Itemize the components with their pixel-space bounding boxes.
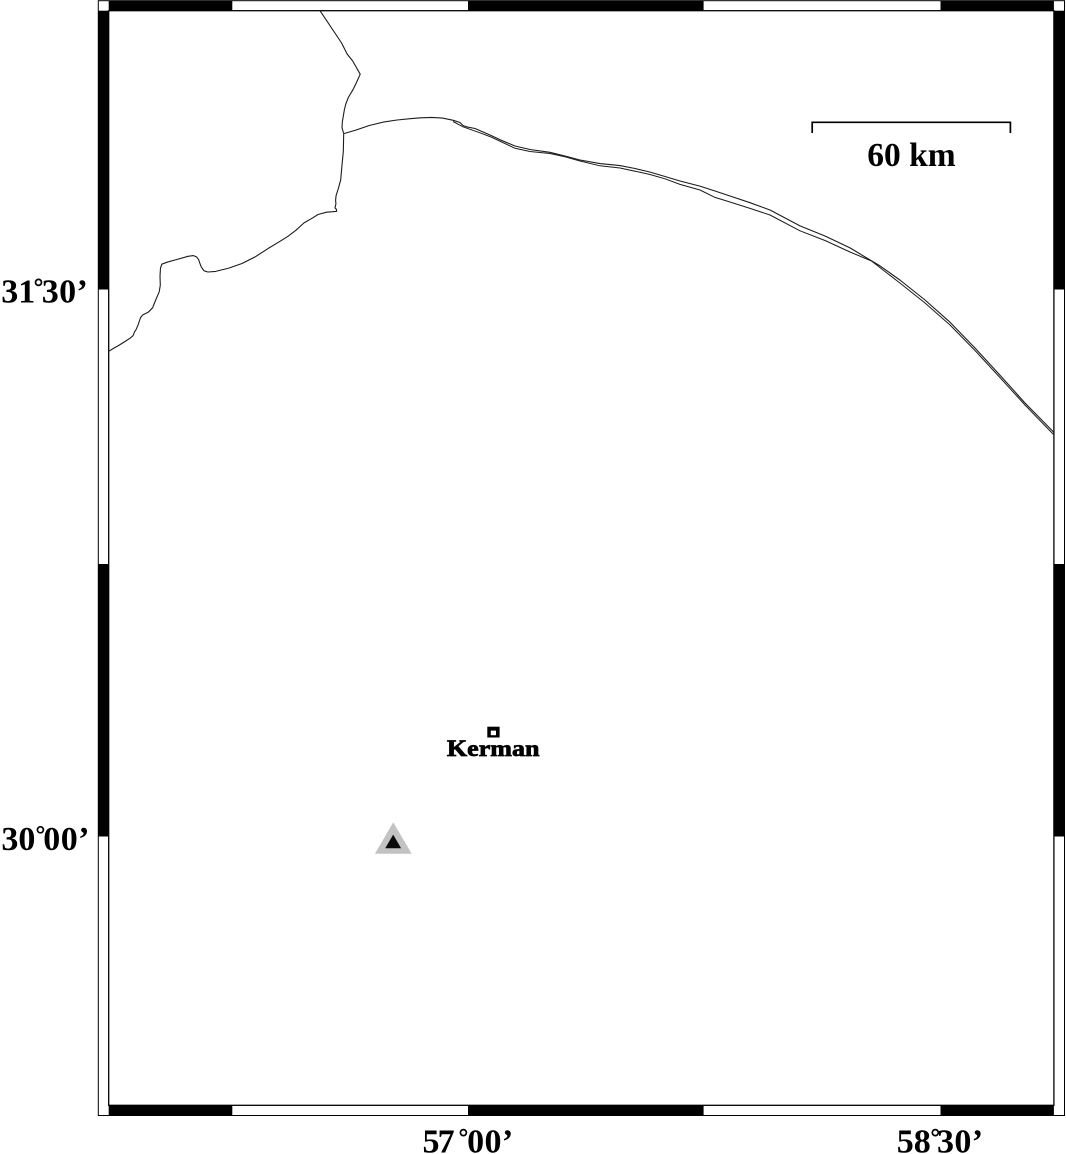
svg-text:30: 30 [1, 821, 35, 858]
svg-text:57: 57 [422, 1123, 454, 1154]
svg-text:00’: 00’ [467, 1123, 514, 1154]
svg-text:58: 58 [897, 1123, 931, 1154]
svg-text:31: 31 [1, 273, 35, 310]
svg-text:00’: 00’ [43, 821, 90, 858]
svg-text:30’: 30’ [42, 273, 89, 310]
svg-text:Kerman: Kerman [447, 736, 540, 761]
svg-text:60 km: 60 km [867, 137, 955, 174]
svg-text:30’: 30’ [937, 1123, 984, 1154]
